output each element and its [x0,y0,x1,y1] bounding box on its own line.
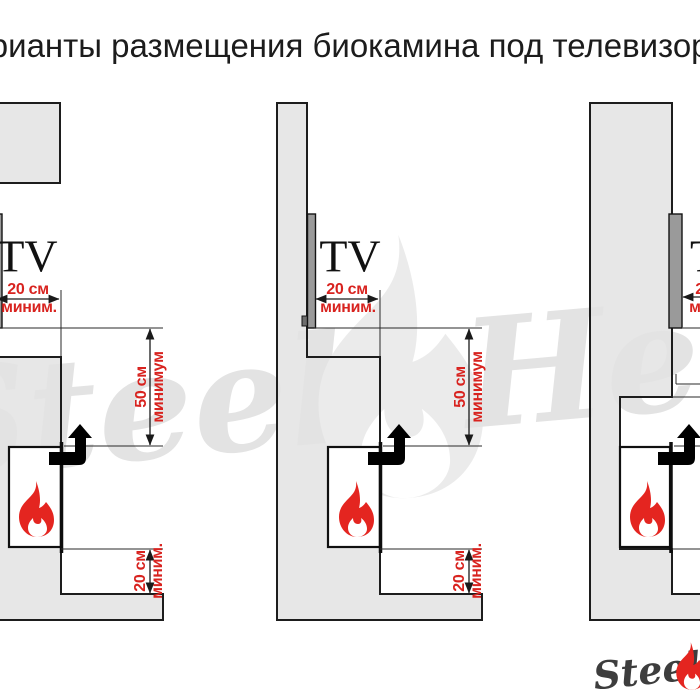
front-gap-value-label: 20 см [695,282,700,298]
above-gap-qualifier-label: минимум [151,351,167,422]
diagram-canvas: Steel Heat [0,0,700,700]
tv-label-variant-2: TV [319,230,380,283]
wall-soffit-variant-1 [0,103,60,183]
below-gap-qualifier-label: миним. [150,543,166,599]
tv-screen [669,214,682,328]
brand-logo-flame-icon [672,640,700,692]
watermark-word-heat: Heat [452,253,700,464]
above-gap-value-label: 50 см [134,366,150,407]
front-gap-value-label: 20 см [7,282,48,298]
biofireplace-placement-infographic: Steel Heat [0,0,700,700]
below-gap-qualifier-label: миним. [469,543,485,599]
page-title: Варианты размещения биокамина под телеви… [0,29,700,63]
above-gap-value-label: 50 см [453,366,469,407]
front-gap-qualifier-label: миним. [320,300,376,316]
front-gap-value-label: 20 см [326,282,367,298]
below-gap-value-label: 20 см [452,550,468,591]
front-gap-qualifier-label: миним. [689,300,700,316]
above-gap-qualifier-label: минимум [470,351,486,422]
tv-screen [308,214,316,328]
front-gap-qualifier-label: миним. [1,300,57,316]
below-gap-value-label: 20 см [133,550,149,591]
tv-label-variant-3: TV [690,230,700,283]
tv-label-variant-1: TV [0,230,58,283]
